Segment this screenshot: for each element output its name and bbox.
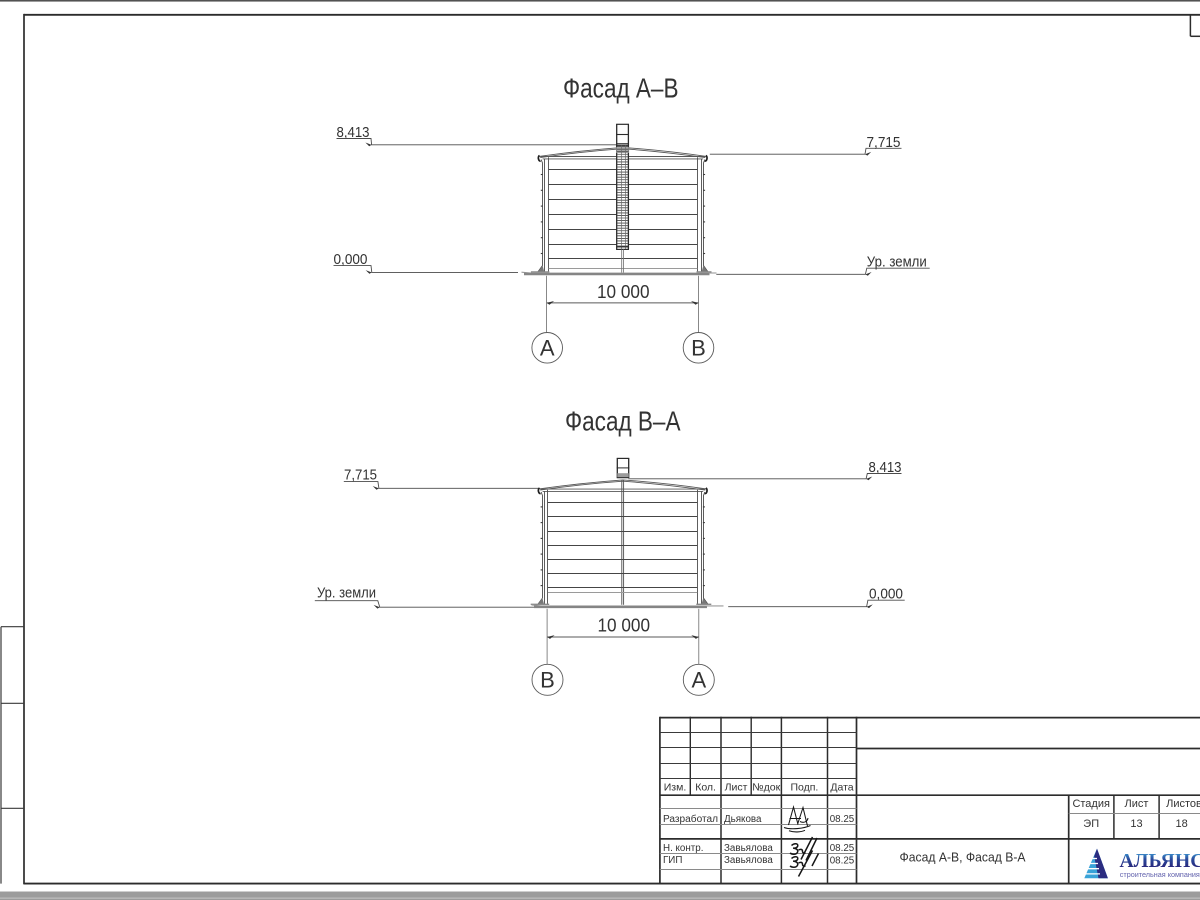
svg-text:В: В: [691, 336, 706, 361]
svg-text:№док: №док: [752, 782, 780, 794]
svg-text:Завьялова: Завьялова: [724, 855, 773, 866]
svg-text:Изм.: Изм.: [664, 782, 687, 794]
svg-text:Н. контр.: Н. контр.: [663, 843, 703, 854]
svg-text:Фасад А–В: Фасад А–В: [563, 73, 679, 104]
svg-text:Фасад В–А: Фасад В–А: [565, 406, 681, 437]
svg-text:А: А: [691, 668, 706, 693]
svg-text:Кол.: Кол.: [695, 782, 716, 794]
svg-text:10 000: 10 000: [598, 615, 651, 636]
svg-text:Фасад А-В, Фасад В-А: Фасад А-В, Фасад В-А: [900, 851, 1027, 865]
svg-text:ЭП: ЭП: [1083, 818, 1099, 830]
svg-text:10 000: 10 000: [597, 281, 650, 302]
svg-text:АЛЬЯНС: АЛЬЯНС: [1120, 850, 1200, 872]
svg-text:ГИП: ГИП: [663, 855, 682, 866]
svg-text:Разработал: Разработал: [663, 814, 718, 825]
svg-text:строительная компания: строительная компания: [1120, 872, 1200, 879]
svg-text:Ур. земли: Ур. земли: [317, 586, 376, 602]
svg-text:08.25: 08.25: [830, 843, 855, 854]
svg-text:Листов: Листов: [1166, 798, 1200, 810]
svg-text:08.25: 08.25: [830, 814, 855, 825]
svg-text:Завьялова: Завьялова: [724, 843, 773, 854]
svg-text:Лист: Лист: [1125, 798, 1149, 810]
svg-text:Стадия: Стадия: [1072, 798, 1110, 810]
svg-text:13: 13: [1130, 818, 1142, 830]
svg-text:Дьякова: Дьякова: [724, 814, 762, 825]
svg-text:18: 18: [1175, 818, 1187, 830]
svg-text:Дата: Дата: [830, 782, 853, 794]
svg-text:Подп.: Подп.: [790, 782, 818, 794]
svg-text:В: В: [540, 668, 555, 693]
svg-text:Лист: Лист: [725, 782, 748, 794]
svg-text:А: А: [540, 336, 555, 361]
svg-text:08.25: 08.25: [830, 856, 855, 867]
